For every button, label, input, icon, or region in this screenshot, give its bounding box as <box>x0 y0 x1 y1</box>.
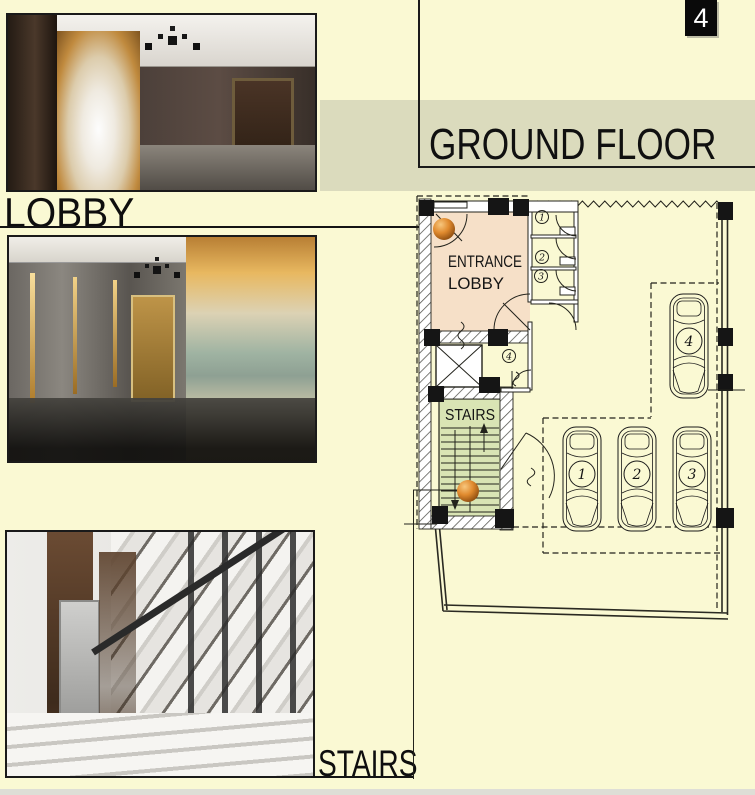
photo3-lower-steps <box>7 713 313 776</box>
ground-floor-plan: 1 2 3 4 1 2 3 4 ENTR <box>400 185 755 795</box>
photo2-floor <box>9 398 315 461</box>
car-1: 1 <box>563 427 601 531</box>
photo2-chandelier <box>153 266 161 274</box>
presentation-board: GROUND FLOOR 4 LOBBY STAIRS <box>0 0 755 795</box>
lobby-photo-1 <box>6 13 317 192</box>
svg-text:1: 1 <box>539 213 545 224</box>
car-3: 3 <box>673 427 711 531</box>
photo2-light-slot <box>113 280 117 388</box>
svg-text:4: 4 <box>505 352 512 363</box>
svg-text:3: 3 <box>688 467 697 483</box>
photo2-light-slot <box>30 273 35 403</box>
page-title: GROUND FLOOR <box>429 120 716 170</box>
entrance-lobby-label-line1: ENTRANCE <box>448 252 522 271</box>
photo1-chandelier <box>168 36 177 45</box>
photo2-elevator-door <box>131 295 175 402</box>
svg-text:2: 2 <box>632 467 642 483</box>
page-number-badge: 4 <box>685 0 717 36</box>
svg-text:1: 1 <box>578 467 587 483</box>
lobby-photo-label: LOBBY <box>4 189 134 237</box>
lobby-photo-2 <box>7 235 317 463</box>
svg-text:2: 2 <box>538 253 545 264</box>
lobby-location-marker <box>433 218 455 240</box>
stairs-label-underline <box>311 776 414 778</box>
photo1-onyx-wall <box>57 31 140 190</box>
photo1-wood-panel <box>8 15 57 190</box>
photo3-elevator-door <box>59 600 100 716</box>
board-bottom-edge <box>0 789 755 795</box>
stairs-room-label: STAIRS <box>445 407 495 424</box>
photo2-light-slot <box>73 277 77 393</box>
stairs-location-marker <box>457 480 479 502</box>
stairs-photo <box>5 530 315 778</box>
svg-text:4: 4 <box>684 334 694 350</box>
svg-text:3: 3 <box>538 272 544 283</box>
lobby-leader-line <box>0 226 445 228</box>
car-4: 4 <box>670 294 708 398</box>
stairs-leader-line <box>414 490 463 779</box>
car-2: 2 <box>618 427 656 531</box>
entrance-lobby-label-line2: LOBBY <box>448 274 504 293</box>
